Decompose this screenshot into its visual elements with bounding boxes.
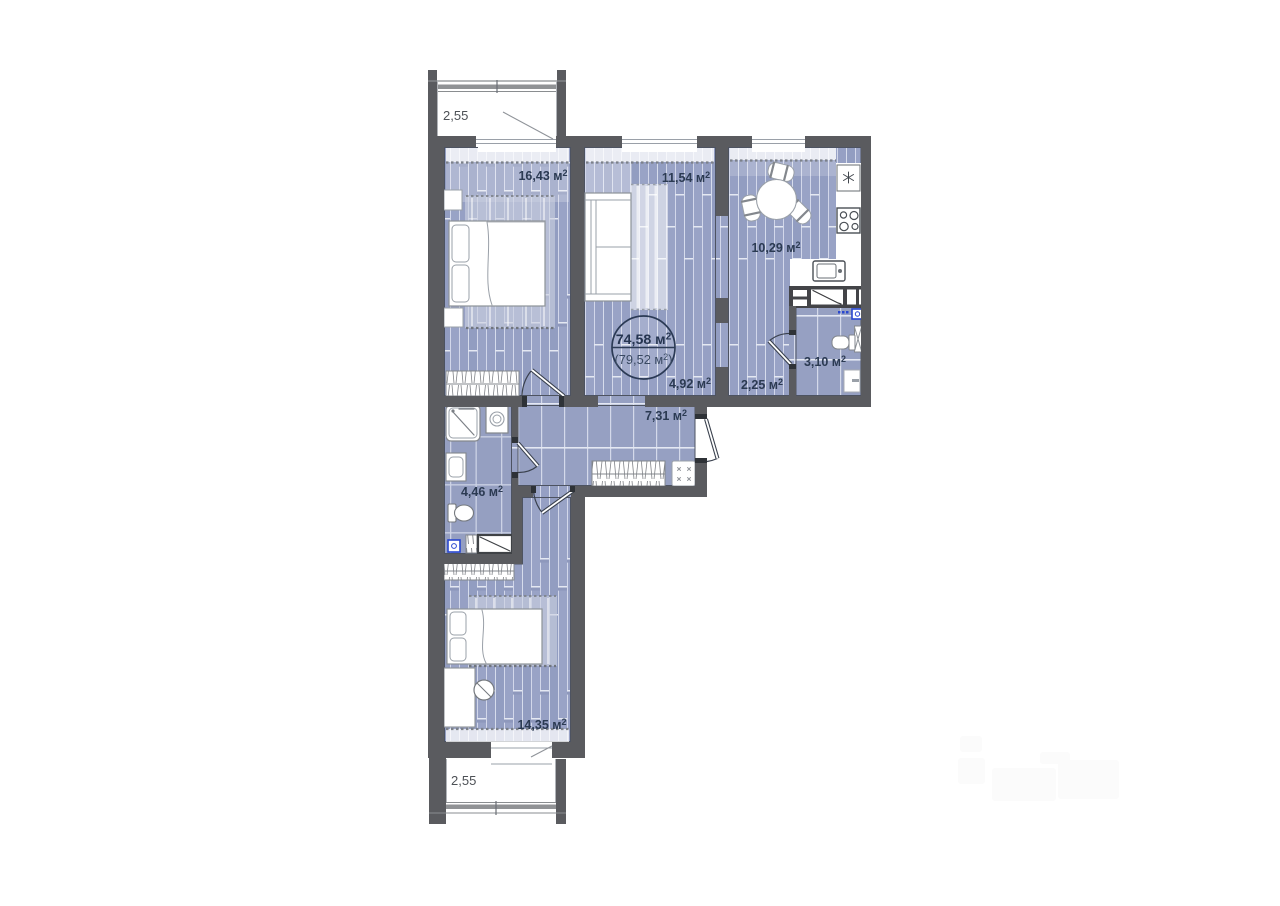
svg-text:2,55: 2,55: [443, 108, 468, 123]
svg-text:2,25 м2: 2,25 м2: [741, 377, 783, 392]
svg-text:3,10 м2: 3,10 м2: [804, 354, 846, 369]
svg-text:7,31 м2: 7,31 м2: [645, 408, 687, 423]
svg-text:14,35 м2: 14,35 м2: [517, 717, 566, 732]
svg-text:16,43 м2: 16,43 м2: [518, 168, 567, 183]
svg-text:4,46 м2: 4,46 м2: [461, 484, 503, 499]
svg-text:74,58 м2: 74,58 м2: [616, 332, 672, 349]
svg-text:11,54 м2: 11,54 м2: [662, 170, 710, 185]
svg-text:2,55: 2,55: [451, 773, 476, 788]
svg-text:4,92 м2: 4,92 м2: [669, 376, 711, 391]
svg-text:10,29 м2: 10,29 м2: [751, 240, 800, 255]
